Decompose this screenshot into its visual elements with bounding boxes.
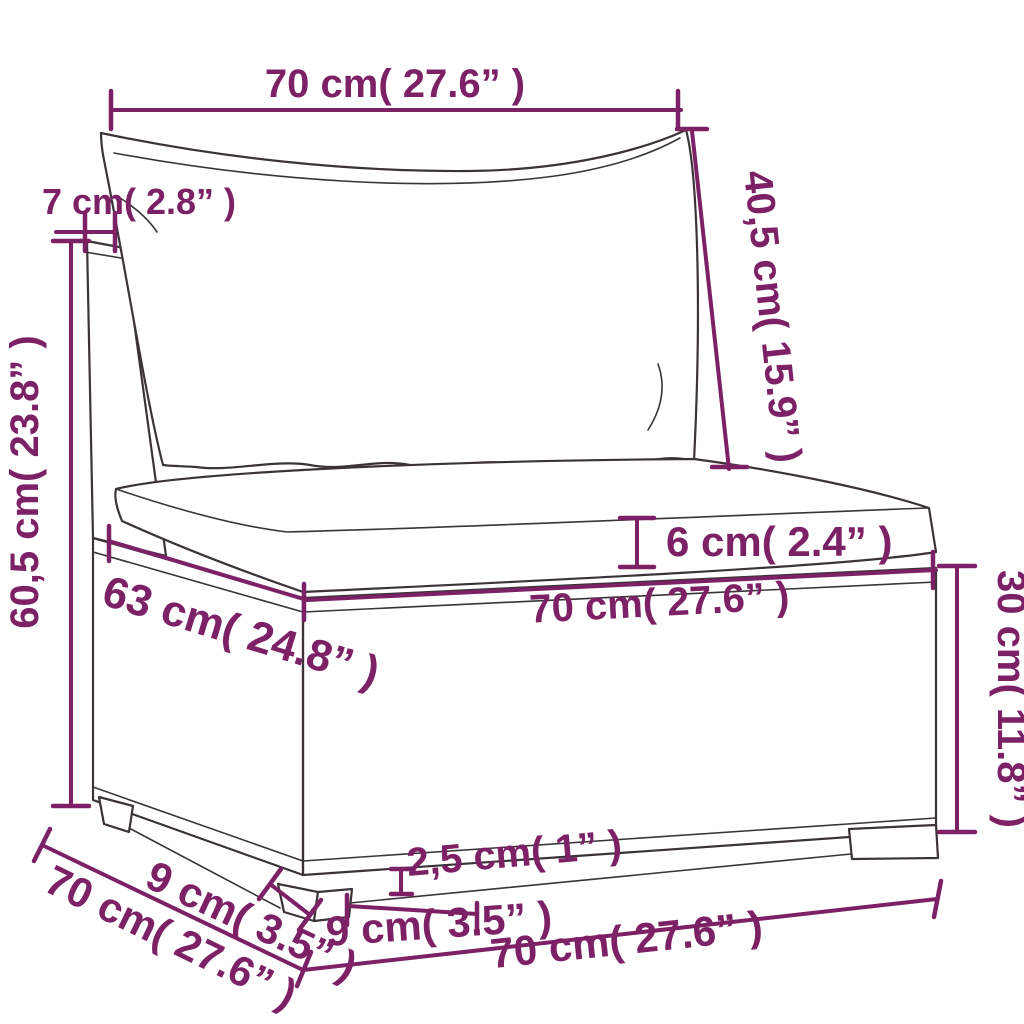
dim-top-width-label: 70 cm( 27.6” )	[265, 62, 525, 106]
dim-leg-height: 2,5 cm( 1” )	[391, 822, 624, 894]
dim-cushion-thickness-label: 6 cm( 2.4” )	[666, 518, 892, 565]
leg-front-right	[849, 825, 938, 859]
dim-top-width: 70 cm( 27.6” )	[111, 62, 681, 129]
dimension-diagram: 70 cm( 27.6” ) 7 cm( 2.8” ) 40,5 cm( 15.…	[0, 0, 1024, 1024]
dim-seat-width-label: 70 cm( 27.6” )	[528, 574, 790, 632]
sofa-dimension-drawing: 70 cm( 27.6” ) 7 cm( 2.8” ) 40,5 cm( 15.…	[0, 0, 1024, 1024]
dim-base-height: 30 cm( 11.8” )	[939, 566, 1024, 832]
dim-leg-height-label: 2,5 cm( 1” )	[405, 822, 624, 885]
dim-backrest-thickness-label: 7 cm( 2.8” )	[42, 181, 236, 222]
dim-overall-height: 60,5 cm( 23.8” )	[3, 241, 89, 806]
dim-base-depth-tick-left	[34, 829, 50, 861]
dim-overall-height-label: 60,5 cm( 23.8” )	[3, 335, 47, 629]
dim-base-height-label: 30 cm( 11.8” )	[989, 570, 1024, 828]
dim-backrest-height-label: 40,5 cm( 15.9” )	[735, 168, 809, 464]
leg-back-left	[99, 797, 133, 832]
